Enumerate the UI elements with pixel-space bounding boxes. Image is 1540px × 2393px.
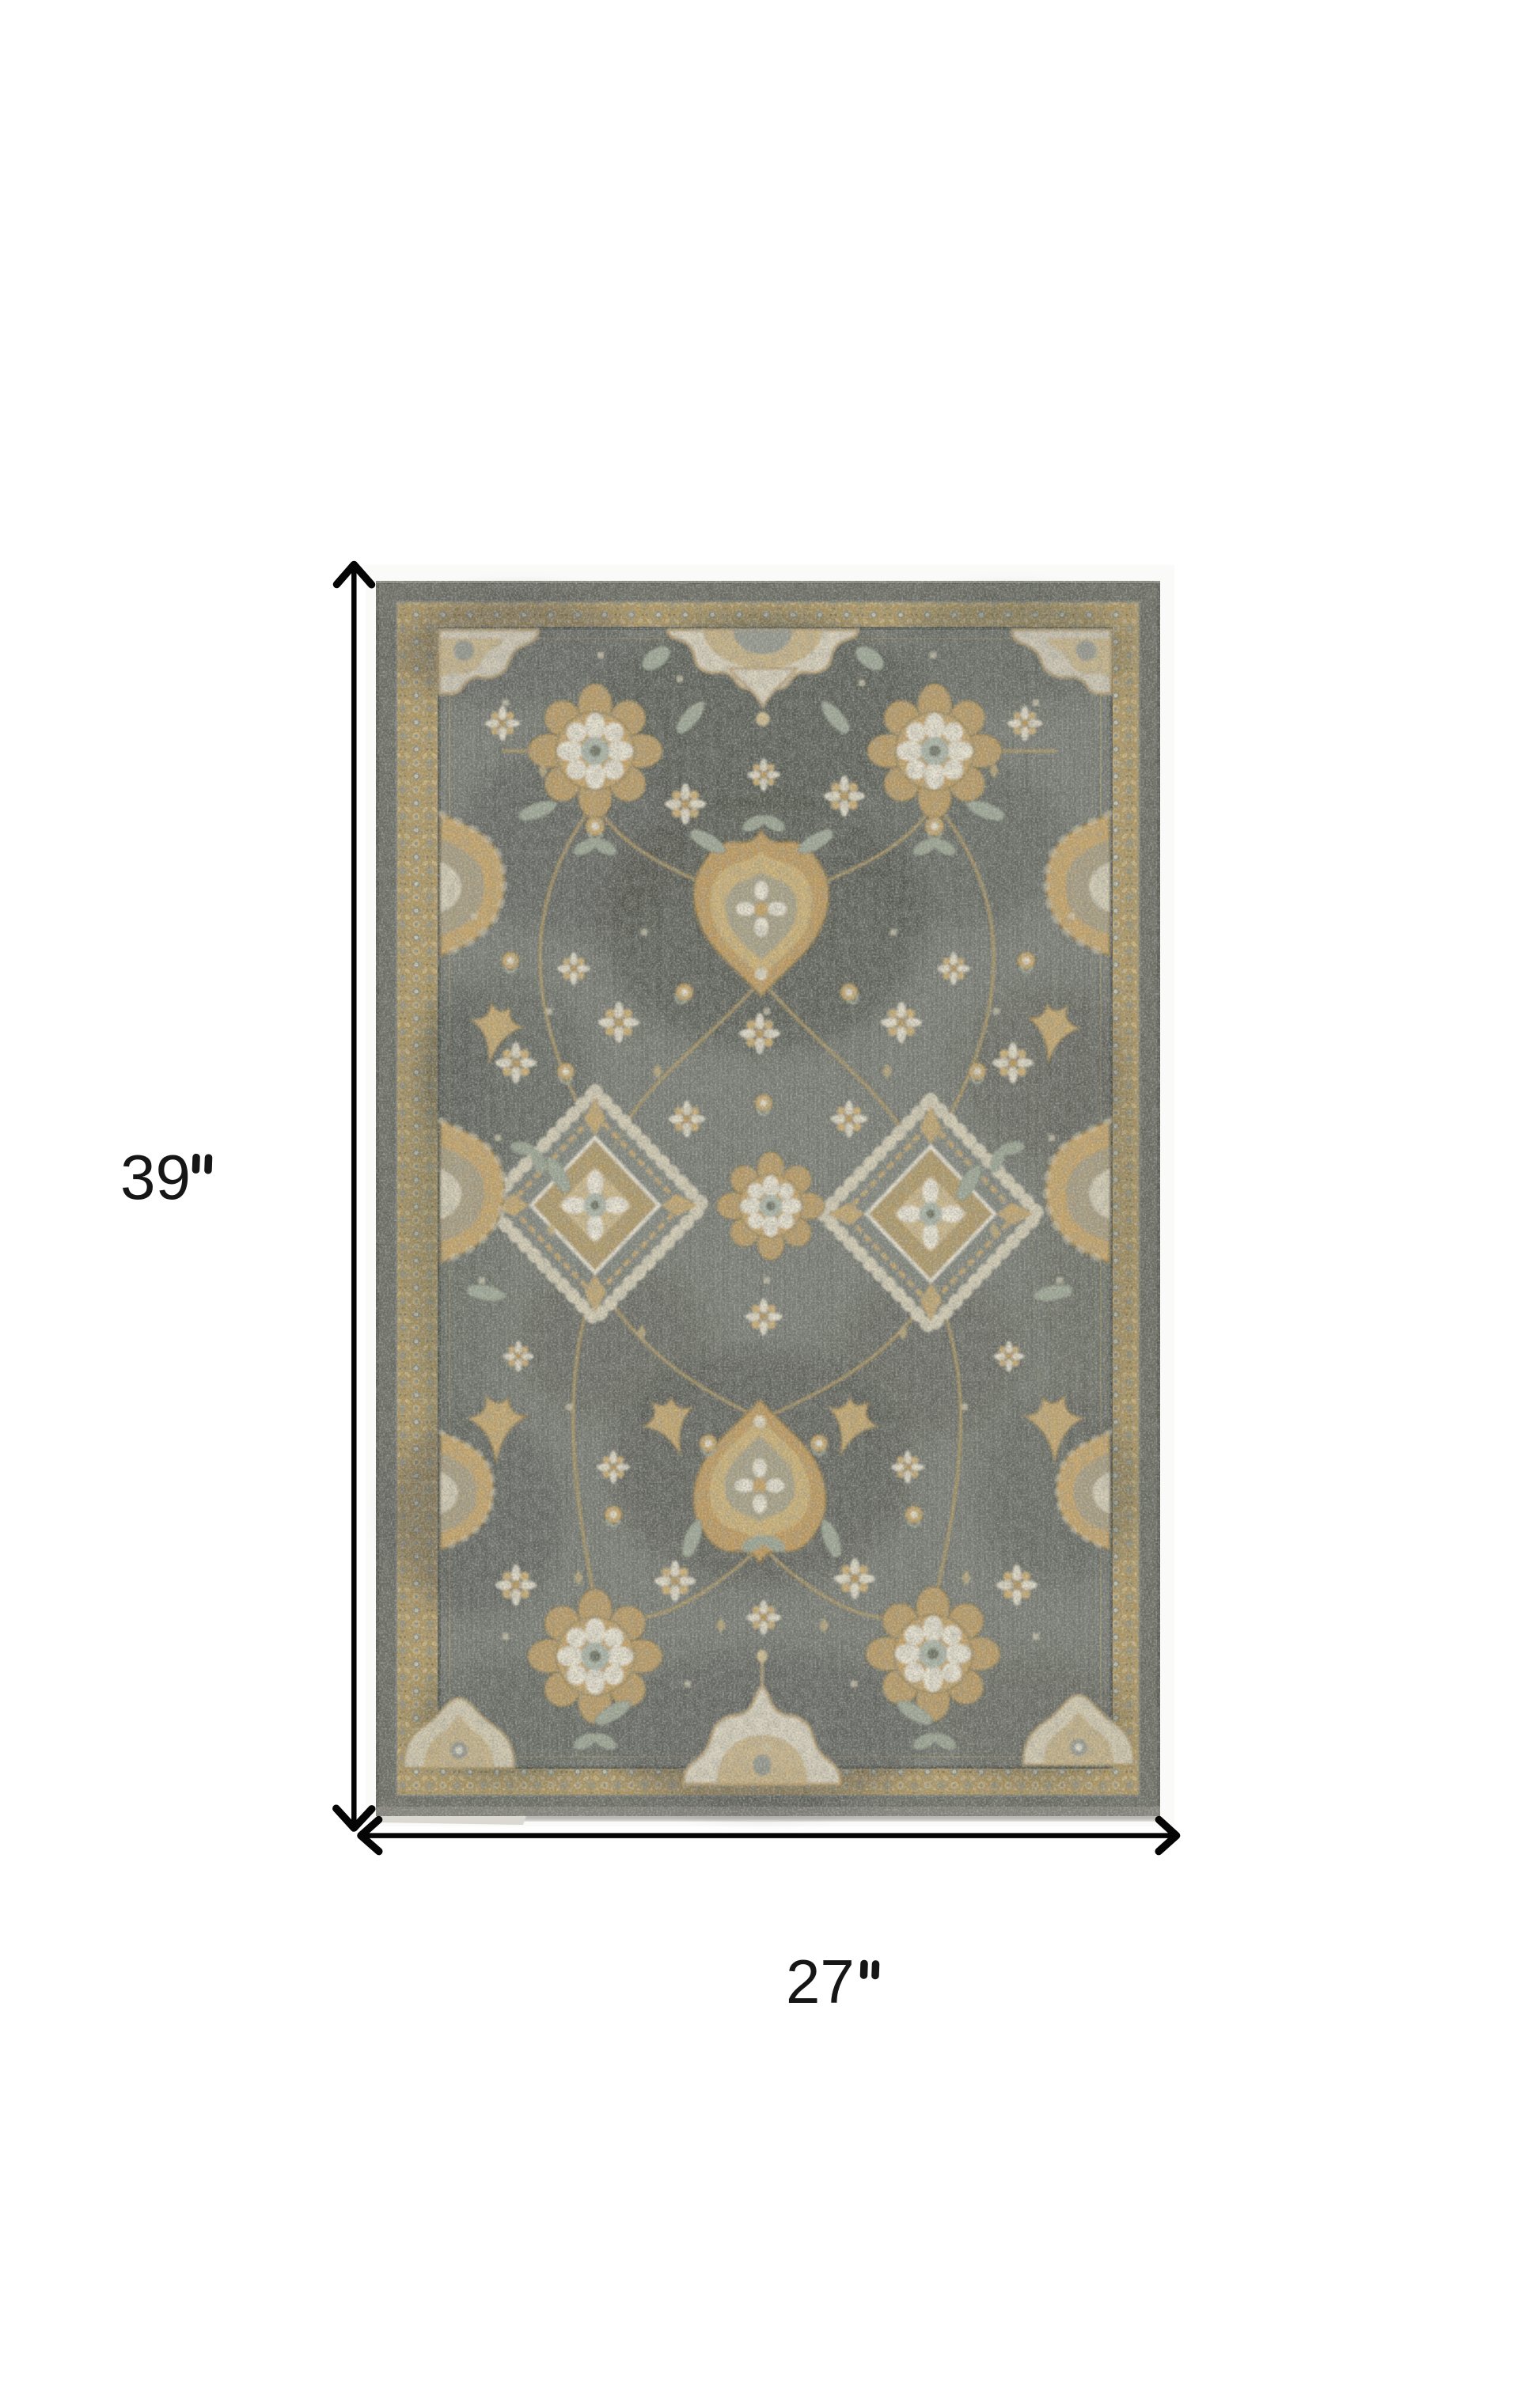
svg-text:39: 39 [120,1142,191,1212]
svg-text:27: 27 [786,1947,855,2016]
